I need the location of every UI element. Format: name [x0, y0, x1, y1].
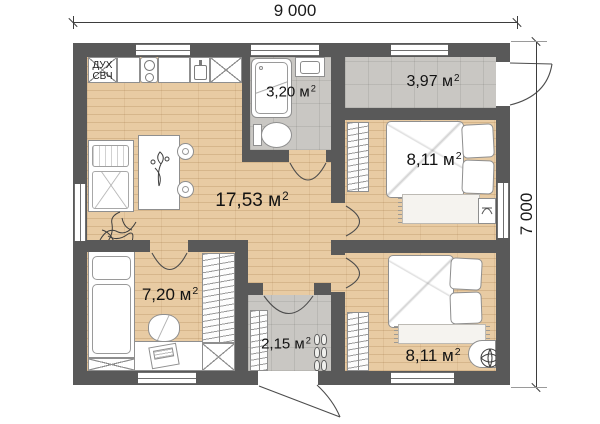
- microwave-label: СВЧ: [89, 71, 116, 82]
- room-area-label-bedroom-top: 8,11 м2: [406, 150, 461, 170]
- extension-line: [511, 387, 547, 388]
- shoes: [314, 347, 327, 358]
- burner-icon: [144, 60, 155, 71]
- chair: [177, 143, 194, 160]
- window: [497, 183, 509, 238]
- burner-icon: [145, 73, 154, 82]
- kitchen-counter: [158, 57, 190, 83]
- oven-label: ДУХ: [89, 60, 116, 71]
- room-area-label-bedroom-bottom: 8,11 м2: [405, 346, 460, 366]
- wall-segment: [188, 240, 235, 252]
- dimension-height-label: 7 000: [517, 193, 537, 236]
- dimension-line-top: [73, 22, 518, 23]
- stove: [140, 57, 158, 83]
- single-bed: [88, 251, 135, 358]
- washbasin-bowl: [300, 61, 320, 74]
- sink-basin: [194, 65, 207, 80]
- shoes: [314, 360, 327, 371]
- room-area-label-living: 17,53 м2: [215, 190, 288, 212]
- wall-segment: [248, 283, 263, 295]
- bed-duvet: [388, 255, 454, 328]
- desk-chair: [148, 314, 180, 342]
- wall-segment: [87, 240, 150, 252]
- nightstand: [478, 198, 496, 224]
- window: [74, 184, 86, 241]
- rug: [398, 324, 486, 344]
- wardrobe: [347, 312, 369, 371]
- wall-segment: [326, 150, 331, 162]
- toilet-bowl: [261, 122, 292, 148]
- room-area-label-entry-bottom: 2,15 м2: [261, 335, 311, 352]
- door-arc-entrance-right: [510, 64, 552, 105]
- corner-table: [468, 340, 496, 368]
- floor-plan: ДУХ СВЧ: [0, 0, 600, 424]
- drain-icon: [259, 66, 263, 70]
- room-area-label-kids-room: 7,20 м2: [142, 285, 198, 305]
- wall-segment: [235, 240, 248, 371]
- wall-segment: [345, 108, 496, 120]
- rug: [402, 194, 480, 224]
- window: [136, 44, 190, 56]
- pillow: [449, 257, 483, 291]
- pillow: [92, 256, 131, 280]
- door-leaf-entrance-right: [510, 63, 552, 64]
- room-area-label-bathroom: 3,20 м2: [266, 83, 316, 100]
- wardrobe: [202, 253, 235, 343]
- sofa-blanket: [92, 171, 129, 209]
- wardrobe: [347, 122, 369, 192]
- window: [391, 44, 448, 56]
- window: [391, 372, 454, 384]
- window: [251, 44, 319, 56]
- dining-table: [138, 135, 180, 210]
- decor-icon: [479, 199, 495, 221]
- sofa: [88, 140, 134, 212]
- kitchen-cabinet-oven-microwave: ДУХ СВЧ: [88, 57, 117, 83]
- wall-segment: [242, 57, 250, 162]
- sofa-cushion: [92, 145, 129, 167]
- pillow: [449, 291, 482, 324]
- wall-segment: [331, 292, 345, 371]
- wall-segment: [314, 283, 331, 295]
- wall-segment: [331, 240, 345, 255]
- plate-icon: [182, 186, 189, 193]
- washbasin: [295, 57, 325, 77]
- wall-segment: [345, 240, 496, 253]
- door-arc-entrance-bottom: [317, 385, 340, 417]
- chair: [177, 181, 194, 198]
- wall-segment: [331, 57, 345, 203]
- laptop-screen: [153, 347, 174, 359]
- plate-icon: [182, 148, 189, 155]
- faucet-icon: [199, 60, 202, 66]
- shoes: [314, 334, 327, 345]
- wardrobe-corner: [202, 343, 235, 371]
- kitchen-corner-cabinet: [210, 57, 242, 83]
- extension-line: [511, 41, 547, 42]
- bed-duvet: [92, 284, 131, 354]
- dimension-width-label: 9 000: [274, 1, 317, 21]
- oven-microwave-label: ДУХ СВЧ: [89, 60, 116, 82]
- entrance-door-opening: [496, 62, 510, 106]
- window: [138, 372, 196, 384]
- pillow: [461, 123, 495, 159]
- room-area-label-entry-top: 3,97 м2: [406, 73, 459, 91]
- kitchen-counter: [117, 57, 140, 83]
- pillow: [461, 159, 494, 194]
- bed-foot-storage: [88, 358, 135, 371]
- door-leaf-entrance-bottom: [259, 386, 340, 417]
- kitchen-sink: [190, 57, 210, 83]
- entrance-door-opening: [258, 371, 318, 385]
- wall-segment: [242, 150, 289, 162]
